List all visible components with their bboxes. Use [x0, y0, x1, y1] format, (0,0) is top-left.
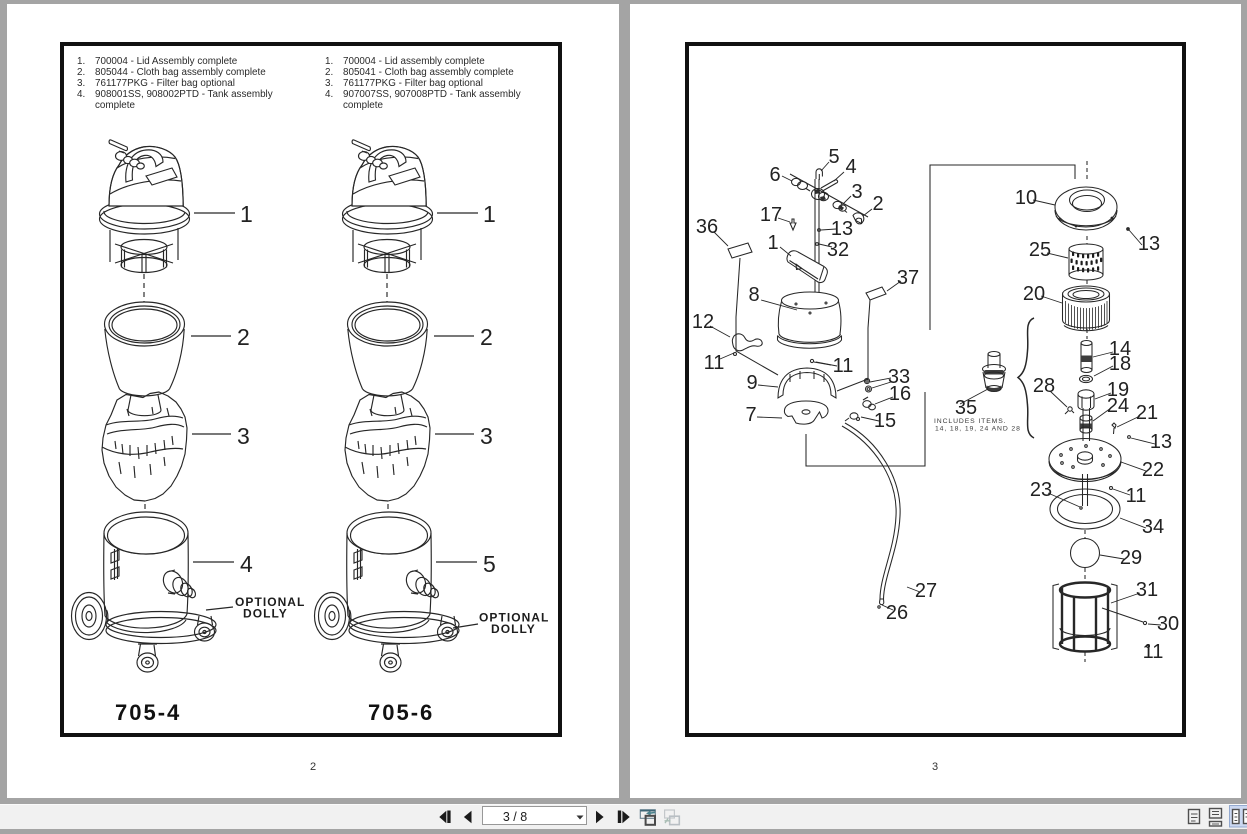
svg-text:31: 31	[1136, 579, 1158, 601]
svg-text:13: 13	[1150, 431, 1172, 453]
svg-text:2: 2	[480, 324, 493, 350]
svg-text:907007SS, 907008PTD - Tank ass: 907007SS, 907008PTD - Tank assembly	[343, 89, 521, 100]
svg-text:805044 - Cloth bag assembly co: 805044 - Cloth bag assembly complete	[95, 67, 266, 78]
svg-text:22: 22	[1142, 459, 1164, 481]
svg-text:37: 37	[897, 267, 919, 289]
svg-text:complete: complete	[95, 100, 135, 111]
svg-text:700004 - Lid assembly complete: 700004 - Lid assembly complete	[343, 56, 485, 67]
svg-text:5: 5	[483, 551, 496, 577]
svg-text:25: 25	[1029, 239, 1051, 261]
svg-text:17: 17	[760, 204, 782, 226]
svg-text:5: 5	[828, 146, 839, 168]
svg-text:1: 1	[483, 201, 496, 227]
svg-text:20: 20	[1023, 283, 1045, 305]
svg-text:18: 18	[1109, 353, 1131, 375]
svg-text:3.: 3.	[77, 78, 85, 89]
svg-text:INCLUDES ITEMS.: INCLUDES ITEMS.	[934, 418, 1006, 425]
svg-text:3: 3	[932, 761, 938, 773]
svg-text:10: 10	[1015, 187, 1037, 209]
svg-text:complete: complete	[343, 100, 383, 111]
svg-text:2.: 2.	[77, 67, 85, 78]
svg-text:16: 16	[889, 383, 911, 405]
svg-text:35: 35	[955, 397, 977, 419]
svg-text:30: 30	[1157, 613, 1179, 635]
svg-text:1: 1	[767, 232, 778, 254]
svg-text:761177PKG - Filter bag optiona: 761177PKG - Filter bag optional	[95, 78, 235, 89]
svg-text:805041 - Cloth bag assembly co: 805041 - Cloth bag assembly complete	[343, 67, 514, 78]
svg-text:2: 2	[237, 324, 250, 350]
svg-text:4.: 4.	[325, 89, 333, 100]
svg-text:3.: 3.	[325, 78, 333, 89]
svg-text:1.: 1.	[77, 56, 85, 67]
svg-text:DOLLY: DOLLY	[491, 622, 536, 636]
svg-text:32: 32	[827, 239, 849, 261]
svg-text:3: 3	[237, 423, 250, 449]
svg-text:1: 1	[240, 201, 253, 227]
svg-text:705-6: 705-6	[368, 700, 434, 725]
svg-text:36: 36	[696, 216, 718, 238]
svg-text:4: 4	[240, 551, 253, 577]
svg-text:DOLLY: DOLLY	[243, 607, 288, 621]
svg-text:24: 24	[1107, 395, 1129, 417]
svg-text:11: 11	[1126, 485, 1147, 507]
svg-text:4.: 4.	[77, 89, 85, 100]
svg-text:3: 3	[480, 423, 493, 449]
svg-text:908001SS, 908002PTD - Tank ass: 908001SS, 908002PTD - Tank assembly	[95, 89, 273, 100]
svg-text:11: 11	[704, 352, 725, 374]
svg-text:2: 2	[310, 761, 316, 773]
svg-text:7: 7	[745, 404, 756, 426]
svg-text:6: 6	[769, 164, 780, 186]
svg-text:27: 27	[915, 580, 937, 602]
svg-text:1.: 1.	[325, 56, 333, 67]
svg-text:705-4: 705-4	[115, 700, 181, 725]
svg-text:11: 11	[833, 355, 854, 377]
svg-text:700004 - Lid Assembly complete: 700004 - Lid Assembly complete	[95, 56, 238, 67]
svg-text:29: 29	[1120, 547, 1142, 569]
svg-text:13: 13	[1138, 233, 1160, 255]
svg-text:23: 23	[1030, 479, 1052, 501]
svg-text:761177PKG - Filter bag optiona: 761177PKG - Filter bag optional	[343, 78, 483, 89]
svg-text:4: 4	[845, 156, 856, 178]
svg-text:26: 26	[886, 602, 908, 624]
svg-text:13: 13	[831, 218, 853, 240]
svg-text:3: 3	[851, 181, 862, 203]
svg-text:15: 15	[874, 410, 896, 432]
svg-text:34: 34	[1142, 516, 1164, 538]
svg-text:28: 28	[1033, 375, 1055, 397]
svg-text:9: 9	[746, 372, 757, 394]
svg-text:2: 2	[872, 193, 883, 215]
svg-text:12: 12	[692, 311, 714, 333]
svg-text:2.: 2.	[325, 67, 333, 78]
svg-text:21: 21	[1136, 402, 1158, 424]
svg-text:11: 11	[1143, 641, 1164, 663]
svg-text:8: 8	[748, 284, 759, 306]
svg-text:3 / 8: 3 / 8	[503, 810, 527, 824]
svg-text:14, 18, 19, 24 AND 28: 14, 18, 19, 24 AND 28	[935, 426, 1021, 433]
